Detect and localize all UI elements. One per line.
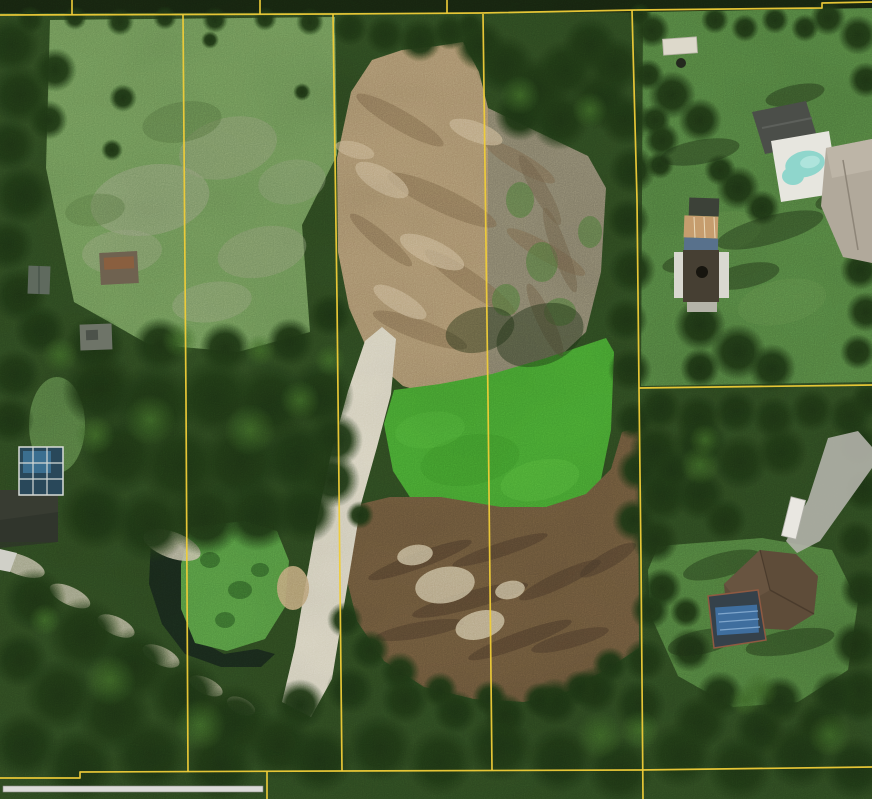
ne-shed — [662, 37, 697, 55]
ne-pool-shape — [782, 167, 804, 185]
mr-house-reroof-shape — [687, 302, 717, 312]
mr-house-reroof-shape — [689, 197, 720, 216]
left-pool-enclosure — [19, 447, 63, 495]
layer-scalebar — [3, 786, 263, 792]
mr-house-reroof-shape — [719, 252, 729, 298]
layer-noise — [0, 0, 872, 799]
ne-firepit-shape — [676, 58, 686, 68]
nw-shed-small — [28, 266, 51, 295]
nw-shed-barn — [99, 251, 139, 285]
nw-shed-gray-shape — [86, 330, 98, 340]
mr-house-reroof-shape — [674, 252, 683, 298]
nw-shed-gray — [80, 323, 113, 350]
aerial-map[interactable] — [0, 0, 872, 799]
map-scale-bar — [3, 786, 263, 792]
aerial-map-viewport[interactable] — [0, 0, 872, 799]
se-pool-enclosure — [708, 590, 766, 648]
terrain-texture-noise — [0, 0, 872, 799]
nw-shed-barn-shape — [104, 256, 135, 270]
mr-house-reroof-shape — [684, 215, 719, 238]
ne-firepit — [676, 58, 686, 68]
mr-house-reroof-shape — [696, 266, 708, 278]
ne-shed-shape — [662, 37, 697, 55]
